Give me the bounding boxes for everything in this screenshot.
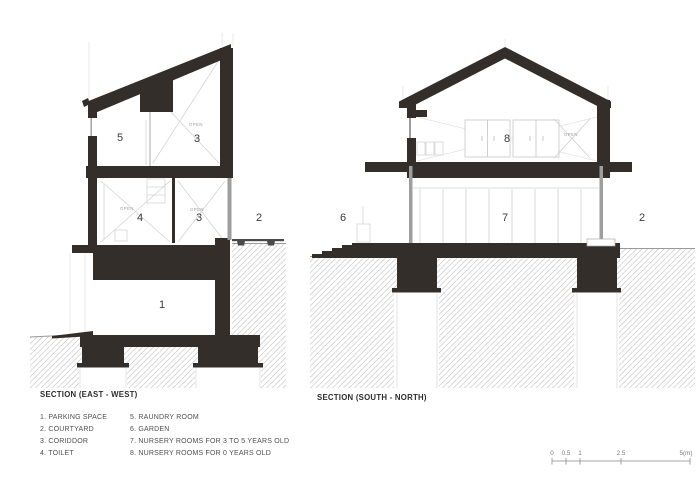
foundation-pier bbox=[397, 258, 437, 288]
black-structure bbox=[312, 47, 632, 292]
upper-floor-slab bbox=[86, 166, 233, 178]
cabinet-outline bbox=[417, 142, 425, 155]
legend-item-toilet: 4. TOILET bbox=[40, 450, 74, 457]
legend-item-coriddor: 3. CORIDDOR bbox=[40, 438, 88, 445]
open-label: OPEN bbox=[564, 132, 578, 137]
interior-details bbox=[357, 117, 599, 243]
courtyard-glass-wall bbox=[228, 178, 232, 240]
scale-label-0_5: 0.5 bbox=[562, 450, 571, 457]
scale-label-2_5: 2.5 bbox=[617, 450, 626, 457]
courtyard-glass-wall bbox=[600, 166, 604, 243]
earth-hatch bbox=[310, 248, 695, 388]
room-label-courtyard: 2 bbox=[256, 212, 262, 224]
scale-label-1: 1 bbox=[578, 450, 582, 457]
foundation-pier bbox=[577, 258, 617, 288]
garden-fixture bbox=[357, 224, 370, 242]
open-label: OPEN bbox=[190, 207, 204, 212]
legend-item-nursery-3to5: 7. NURSERY ROOMS FOR 3 TO 5 YEARS OLD bbox=[130, 438, 289, 445]
pier-gap bbox=[574, 292, 619, 388]
left-wall-upper bbox=[407, 138, 416, 166]
garden-glass-wall bbox=[409, 166, 413, 243]
title-section-south-north: SECTION (SOUTH - NORTH) bbox=[317, 393, 427, 402]
scale-bar: 0 0.5 1 2.5 5(m) bbox=[550, 450, 692, 465]
room-label-parking: 1 bbox=[159, 299, 165, 311]
footing bbox=[572, 288, 621, 292]
pier-gap bbox=[394, 292, 439, 388]
legend-item-nursery-0yr: 8. NURSERY ROOMS FOR 0 YEARS OLD bbox=[130, 450, 271, 457]
pier-gap bbox=[79, 367, 127, 388]
ground-slab-with-steps bbox=[312, 243, 620, 258]
deck-foot bbox=[237, 241, 245, 246]
cabinet-outline bbox=[435, 142, 443, 155]
cabinet-outline bbox=[426, 142, 434, 155]
ground-slab bbox=[80, 335, 260, 347]
courtyard-drain-box bbox=[587, 239, 615, 246]
room-label-garden: 6 bbox=[340, 212, 346, 224]
toilet-fixture bbox=[115, 230, 127, 241]
gable-roof-right bbox=[505, 47, 611, 108]
annotations: SECTION (EAST - WEST) SECTION (SOUTH - N… bbox=[40, 390, 692, 465]
window-glass bbox=[91, 118, 92, 136]
drawing-sheet: 5 3 4 3 2 1 OPEN OPEN OPEN bbox=[0, 0, 700, 480]
legend-item-courtyard: 2. COURTYARD bbox=[40, 426, 94, 433]
section-south-north: 8 7 6 2 OPEN bbox=[310, 39, 695, 388]
title-section-east-west: SECTION (EAST - WEST) bbox=[40, 390, 138, 399]
room-label-nursery-0yr: 8 bbox=[504, 133, 510, 145]
floor-slab-with-wings bbox=[365, 162, 632, 178]
legend-item-garden: 6. GARDEN bbox=[130, 426, 170, 433]
right-wall-upper bbox=[597, 100, 610, 166]
deck-foot bbox=[267, 241, 275, 246]
right-wall-lower bbox=[215, 238, 230, 337]
legend-item-raundry: 5. RAUNDRY ROOM bbox=[130, 414, 199, 421]
legend: 1. PARKING SPACE 2. COURTYARD 3. CORIDDO… bbox=[40, 414, 289, 457]
section-east-west: 5 3 4 3 2 1 OPEN OPEN OPEN bbox=[30, 33, 286, 388]
window-glass bbox=[409, 118, 411, 138]
foundation-pier bbox=[82, 347, 124, 363]
mid-floor-slab bbox=[93, 245, 230, 280]
wardrobes bbox=[465, 120, 559, 157]
foundation-pier bbox=[198, 347, 258, 363]
footing bbox=[77, 363, 129, 367]
room-label-toilet: 4 bbox=[137, 212, 143, 224]
left-wall-mid bbox=[88, 178, 97, 245]
scale-label-5m: 5(m) bbox=[680, 450, 693, 457]
earth-courtyard bbox=[232, 243, 286, 347]
footing bbox=[193, 363, 263, 367]
room-label-nursery-3to5: 7 bbox=[502, 212, 508, 224]
deck-board bbox=[232, 239, 284, 241]
architectural-sections-svg: 5 3 4 3 2 1 OPEN OPEN OPEN bbox=[0, 0, 700, 480]
footing bbox=[392, 288, 441, 292]
room-label-courtyard: 2 bbox=[639, 212, 645, 224]
legend-item-parking: 1. PARKING SPACE bbox=[40, 414, 107, 421]
room-label-coriddor-upper: 3 bbox=[194, 133, 200, 145]
open-label: OPEN bbox=[120, 206, 134, 211]
open-label: OPEN bbox=[189, 122, 203, 127]
gable-roof-left bbox=[399, 47, 505, 108]
pier-gap bbox=[195, 367, 261, 388]
room-label-raundry: 5 bbox=[117, 132, 123, 144]
mid-partition-wall bbox=[172, 178, 175, 243]
scale-label-0: 0 bbox=[550, 450, 554, 457]
room-label-coriddor-mid: 3 bbox=[196, 212, 202, 224]
low-cabinets bbox=[417, 142, 443, 155]
window-lintel bbox=[407, 110, 427, 117]
earth-body bbox=[310, 248, 695, 388]
left-wall-upper bbox=[88, 105, 97, 118]
right-wall-upper bbox=[220, 48, 233, 178]
